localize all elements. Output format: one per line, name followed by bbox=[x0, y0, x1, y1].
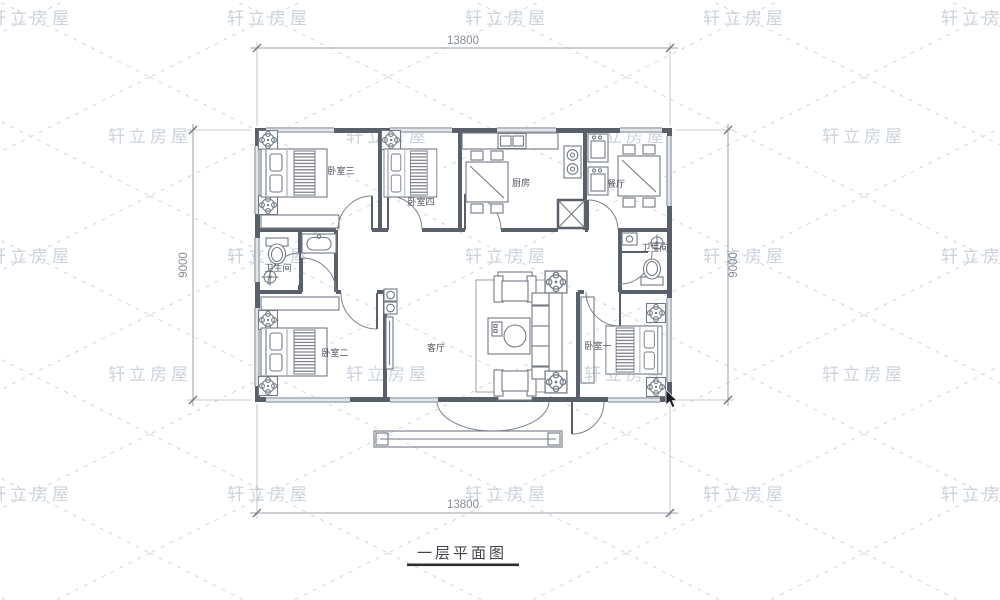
dining-label: 餐厅 bbox=[607, 178, 625, 189]
dim-left-label: 9000 bbox=[178, 252, 190, 278]
kitchen-label: 厨房 bbox=[512, 177, 530, 188]
sofa bbox=[532, 293, 562, 379]
bath-right-label: 卫生间 bbox=[641, 242, 668, 253]
title-text: 一层平面图 bbox=[417, 545, 507, 562]
title-underline bbox=[407, 564, 519, 567]
bath-left-label: 卫生间 bbox=[264, 262, 291, 273]
living-label: 客厅 bbox=[427, 342, 445, 353]
dim-top-label: 13800 bbox=[447, 35, 479, 47]
coffee-table bbox=[488, 318, 530, 354]
floor-plan-canvas: 轩立房屋 轩立房屋 轩立房屋 bbox=[0, 0, 1000, 600]
bedroom4-label: 卧室四 bbox=[407, 196, 434, 207]
bedroom1-label: 卧室一 bbox=[584, 340, 611, 351]
dim-right-label: 9000 bbox=[728, 252, 740, 278]
bedroom2-label: 卧室二 bbox=[321, 347, 348, 358]
dim-bottom-label: 13800 bbox=[447, 499, 479, 511]
floor-plan-page: 轩立房屋 轩立房屋 轩立房屋 bbox=[0, 0, 1000, 600]
bedroom3-label: 卧室三 bbox=[327, 165, 354, 176]
